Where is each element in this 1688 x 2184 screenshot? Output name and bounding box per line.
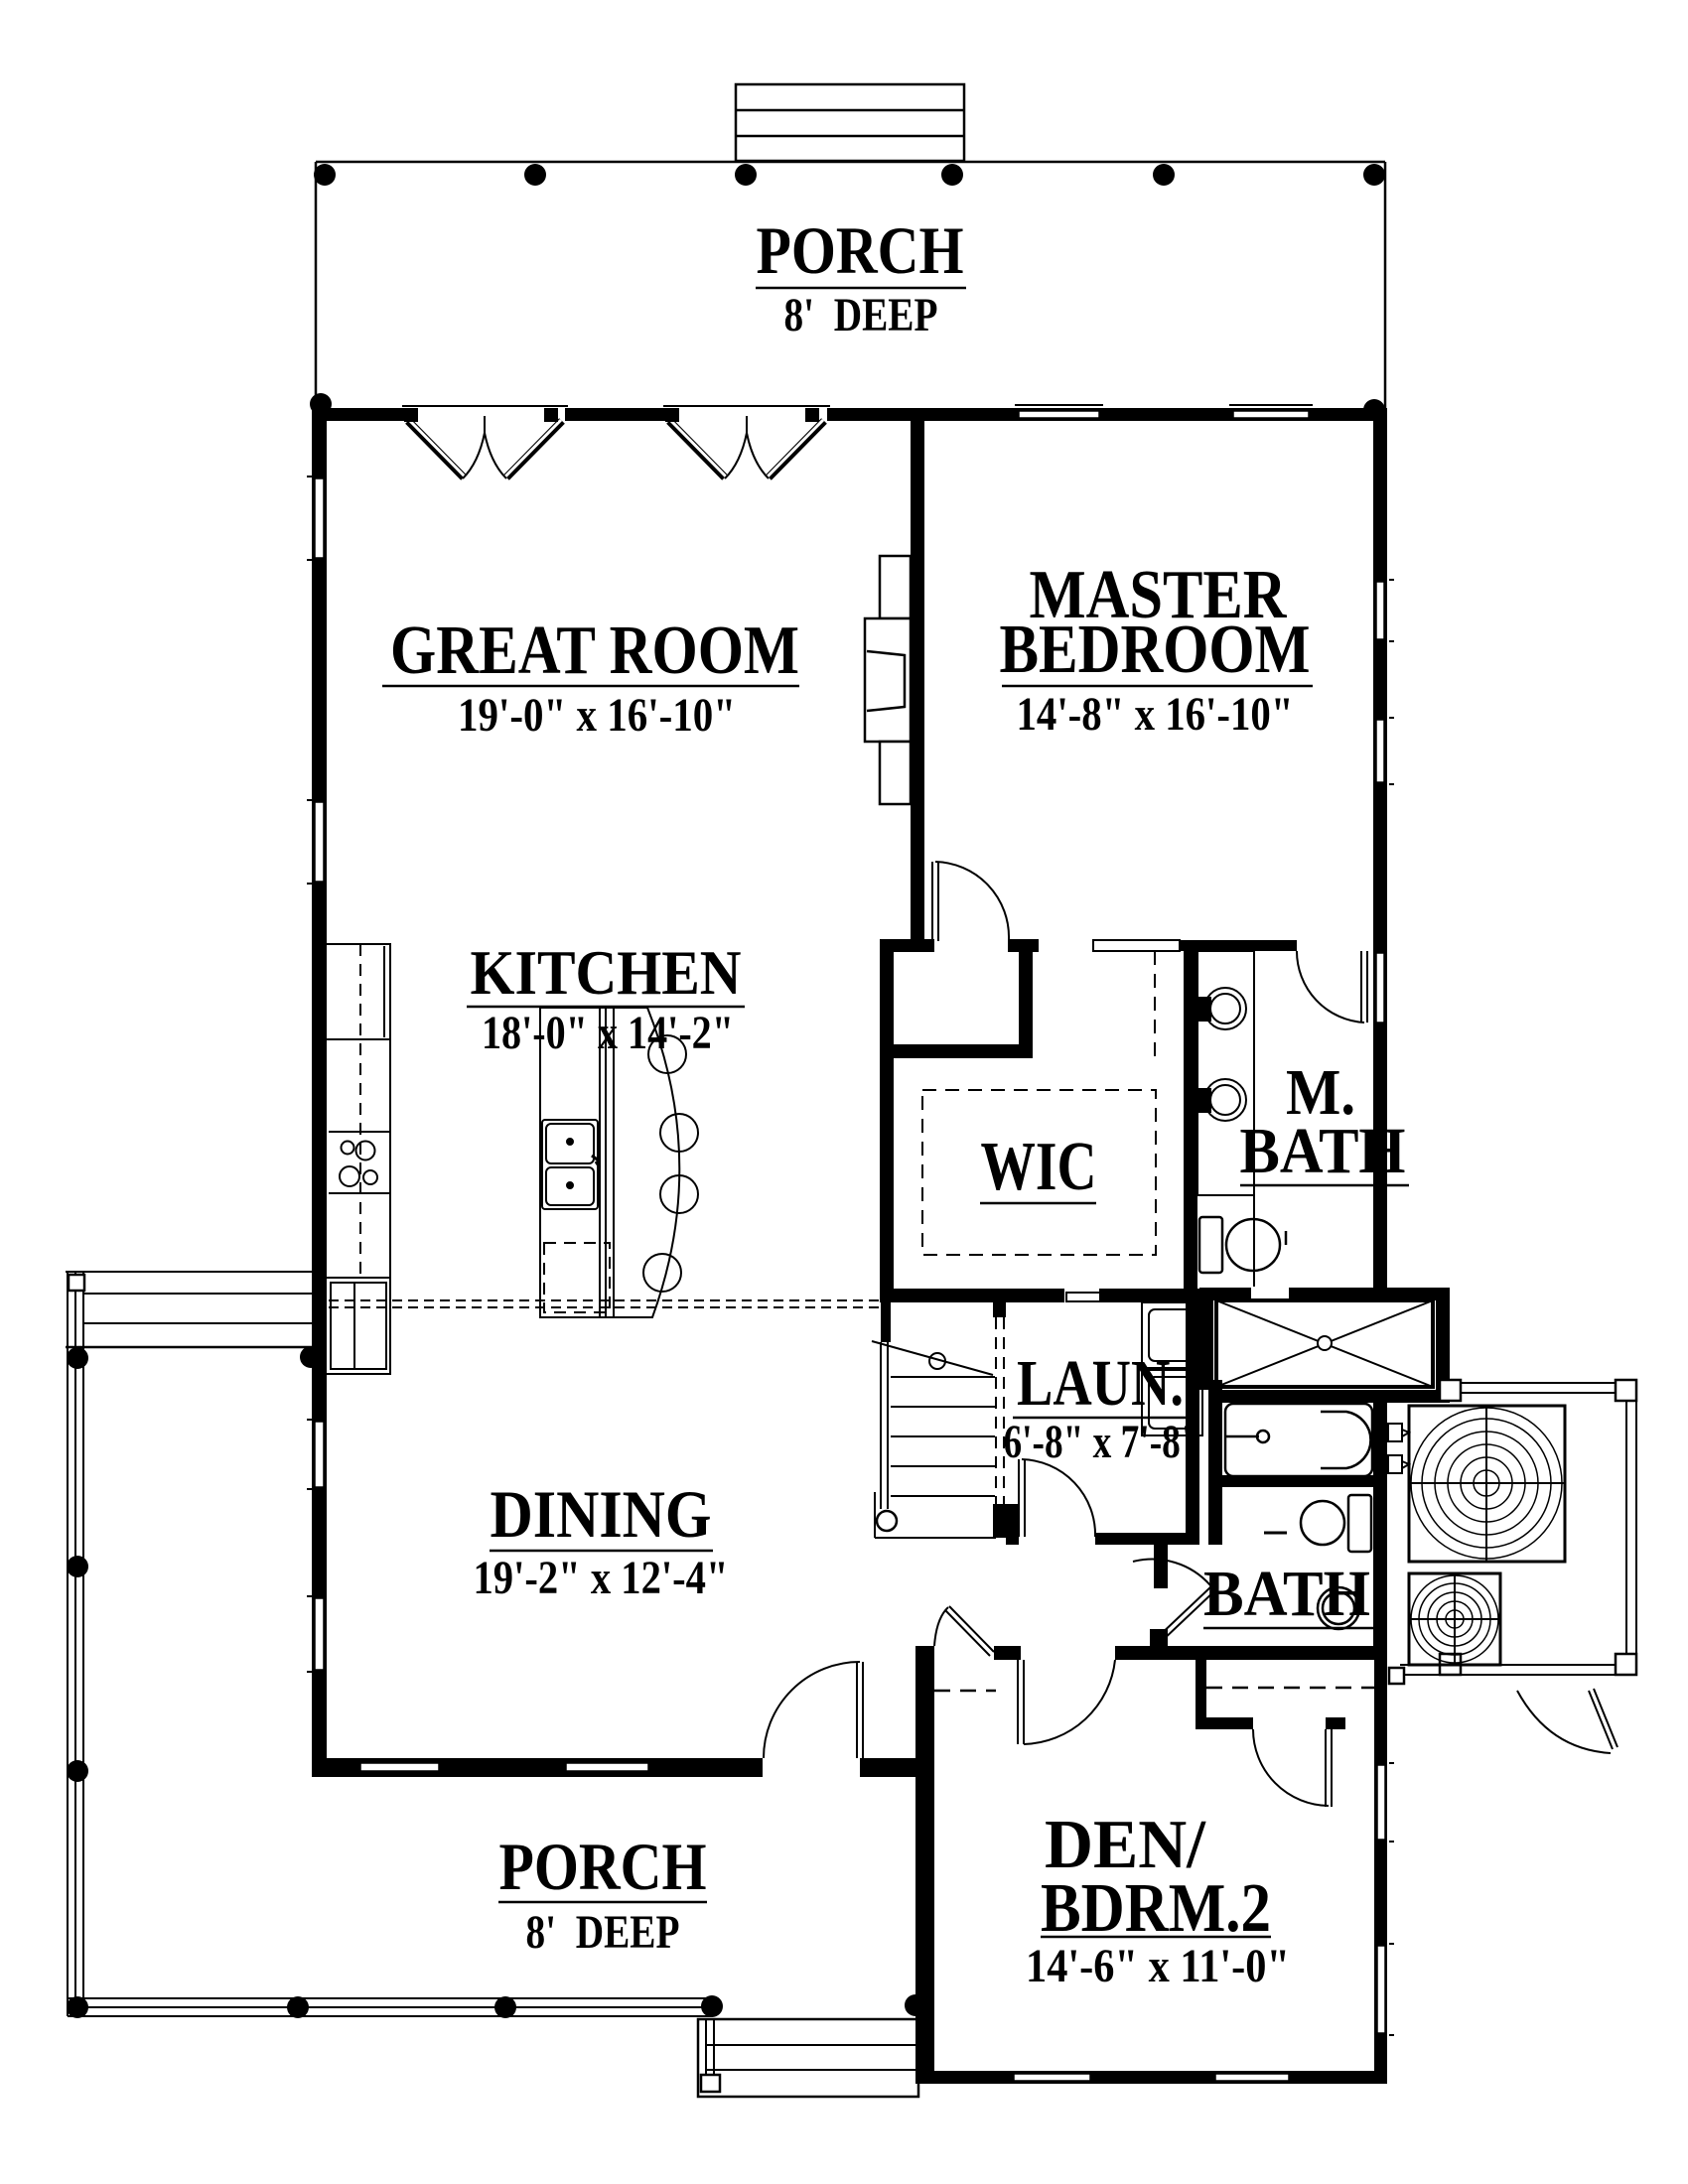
svg-text:WIC: WIC bbox=[981, 1129, 1097, 1205]
svg-text:14'-8" x 16'-10": 14'-8" x 16'-10" bbox=[1017, 688, 1294, 741]
svg-text:GREAT ROOM: GREAT ROOM bbox=[390, 613, 799, 689]
svg-text:PORCH: PORCH bbox=[757, 212, 964, 288]
svg-text:14'-6" x 11'-0": 14'-6" x 11'-0" bbox=[1026, 1940, 1290, 1992]
svg-text:6'-8" x 7'-8": 6'-8" x 7'-8" bbox=[1004, 1416, 1201, 1468]
svg-text:18'-0" x 14'-2": 18'-0" x 14'-2" bbox=[482, 1007, 734, 1059]
svg-text:PORCH: PORCH bbox=[499, 1829, 707, 1904]
svg-text:BATH: BATH bbox=[1240, 1115, 1406, 1187]
svg-text:DINING: DINING bbox=[491, 1476, 712, 1552]
svg-text:19'-0" x 16'-10": 19'-0" x 16'-10" bbox=[458, 689, 736, 742]
svg-text:8' DEEP: 8' DEEP bbox=[784, 289, 938, 341]
svg-text:8' DEEP: 8' DEEP bbox=[526, 1906, 680, 1959]
svg-text:BATH: BATH bbox=[1203, 1558, 1370, 1630]
svg-text:19'-2" x 12'-4": 19'-2" x 12'-4" bbox=[474, 1552, 729, 1604]
svg-text:KITCHEN: KITCHEN bbox=[471, 937, 742, 1008]
svg-text:LAUN.: LAUN. bbox=[1017, 1347, 1184, 1420]
svg-text:BEDROOM: BEDROOM bbox=[1000, 612, 1311, 688]
svg-text:BDRM.2: BDRM.2 bbox=[1041, 1870, 1271, 1947]
